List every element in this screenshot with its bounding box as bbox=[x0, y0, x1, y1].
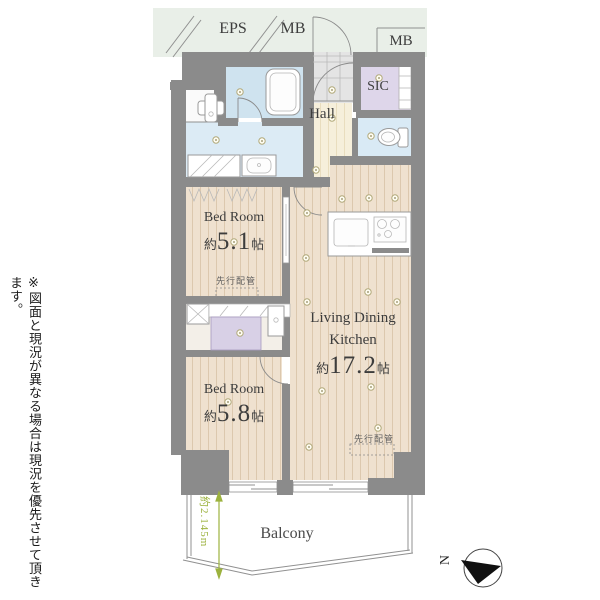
hall-label: Hall bbox=[292, 106, 352, 123]
ldk-size: 約17.2帖 bbox=[294, 352, 412, 380]
balcony-windows bbox=[229, 482, 368, 492]
bedroom-upper-size: 約5.1帖 bbox=[186, 228, 282, 256]
kitchen-counter bbox=[328, 212, 411, 256]
closet-sliding-panel bbox=[211, 317, 261, 350]
compass bbox=[461, 549, 502, 587]
compass-north-label: N bbox=[438, 555, 454, 565]
mb-left-label: MB bbox=[265, 20, 321, 38]
mb-right-label: MB bbox=[377, 33, 425, 50]
ldk-label-line1: Living Dining bbox=[294, 310, 412, 327]
ldk-label-line2: Kitchen bbox=[294, 332, 412, 349]
toilet-bowl bbox=[378, 128, 408, 147]
balcony-depth-label: 約2.145m bbox=[197, 496, 213, 547]
piping-lower-label: 先行配管 bbox=[348, 432, 400, 445]
refrigerator-space bbox=[268, 306, 284, 336]
sic-label: SIC bbox=[354, 79, 402, 95]
piping-upper-label: 先行配管 bbox=[210, 274, 262, 287]
ldk-floor-upper bbox=[330, 165, 411, 187]
disclaimer-note: ※図面と現況が異なる場合は現況を優先させて頂きます。 bbox=[6, 276, 44, 598]
vanity-sink bbox=[242, 155, 276, 176]
bedroom-lower-label: Bed Room bbox=[184, 382, 284, 398]
bedroom-upper-sliding-door bbox=[283, 197, 289, 263]
floorplan-page: EPS MB MB SIC Hall Bed Room 約5.1帖 先行配管 L… bbox=[0, 0, 600, 600]
balcony-dimension bbox=[216, 492, 222, 578]
entrance-floor bbox=[314, 52, 353, 103]
kitchen-sink bbox=[334, 219, 368, 246]
washing-machine bbox=[188, 155, 240, 177]
balcony-label: Balcony bbox=[247, 525, 327, 543]
compass-needle bbox=[461, 560, 501, 584]
floorplan-graphics bbox=[0, 0, 600, 600]
bedroom-lower-size: 約5.8帖 bbox=[184, 400, 284, 428]
bedroom-upper-label: Bed Room bbox=[186, 210, 282, 226]
eps-label: EPS bbox=[205, 20, 261, 38]
